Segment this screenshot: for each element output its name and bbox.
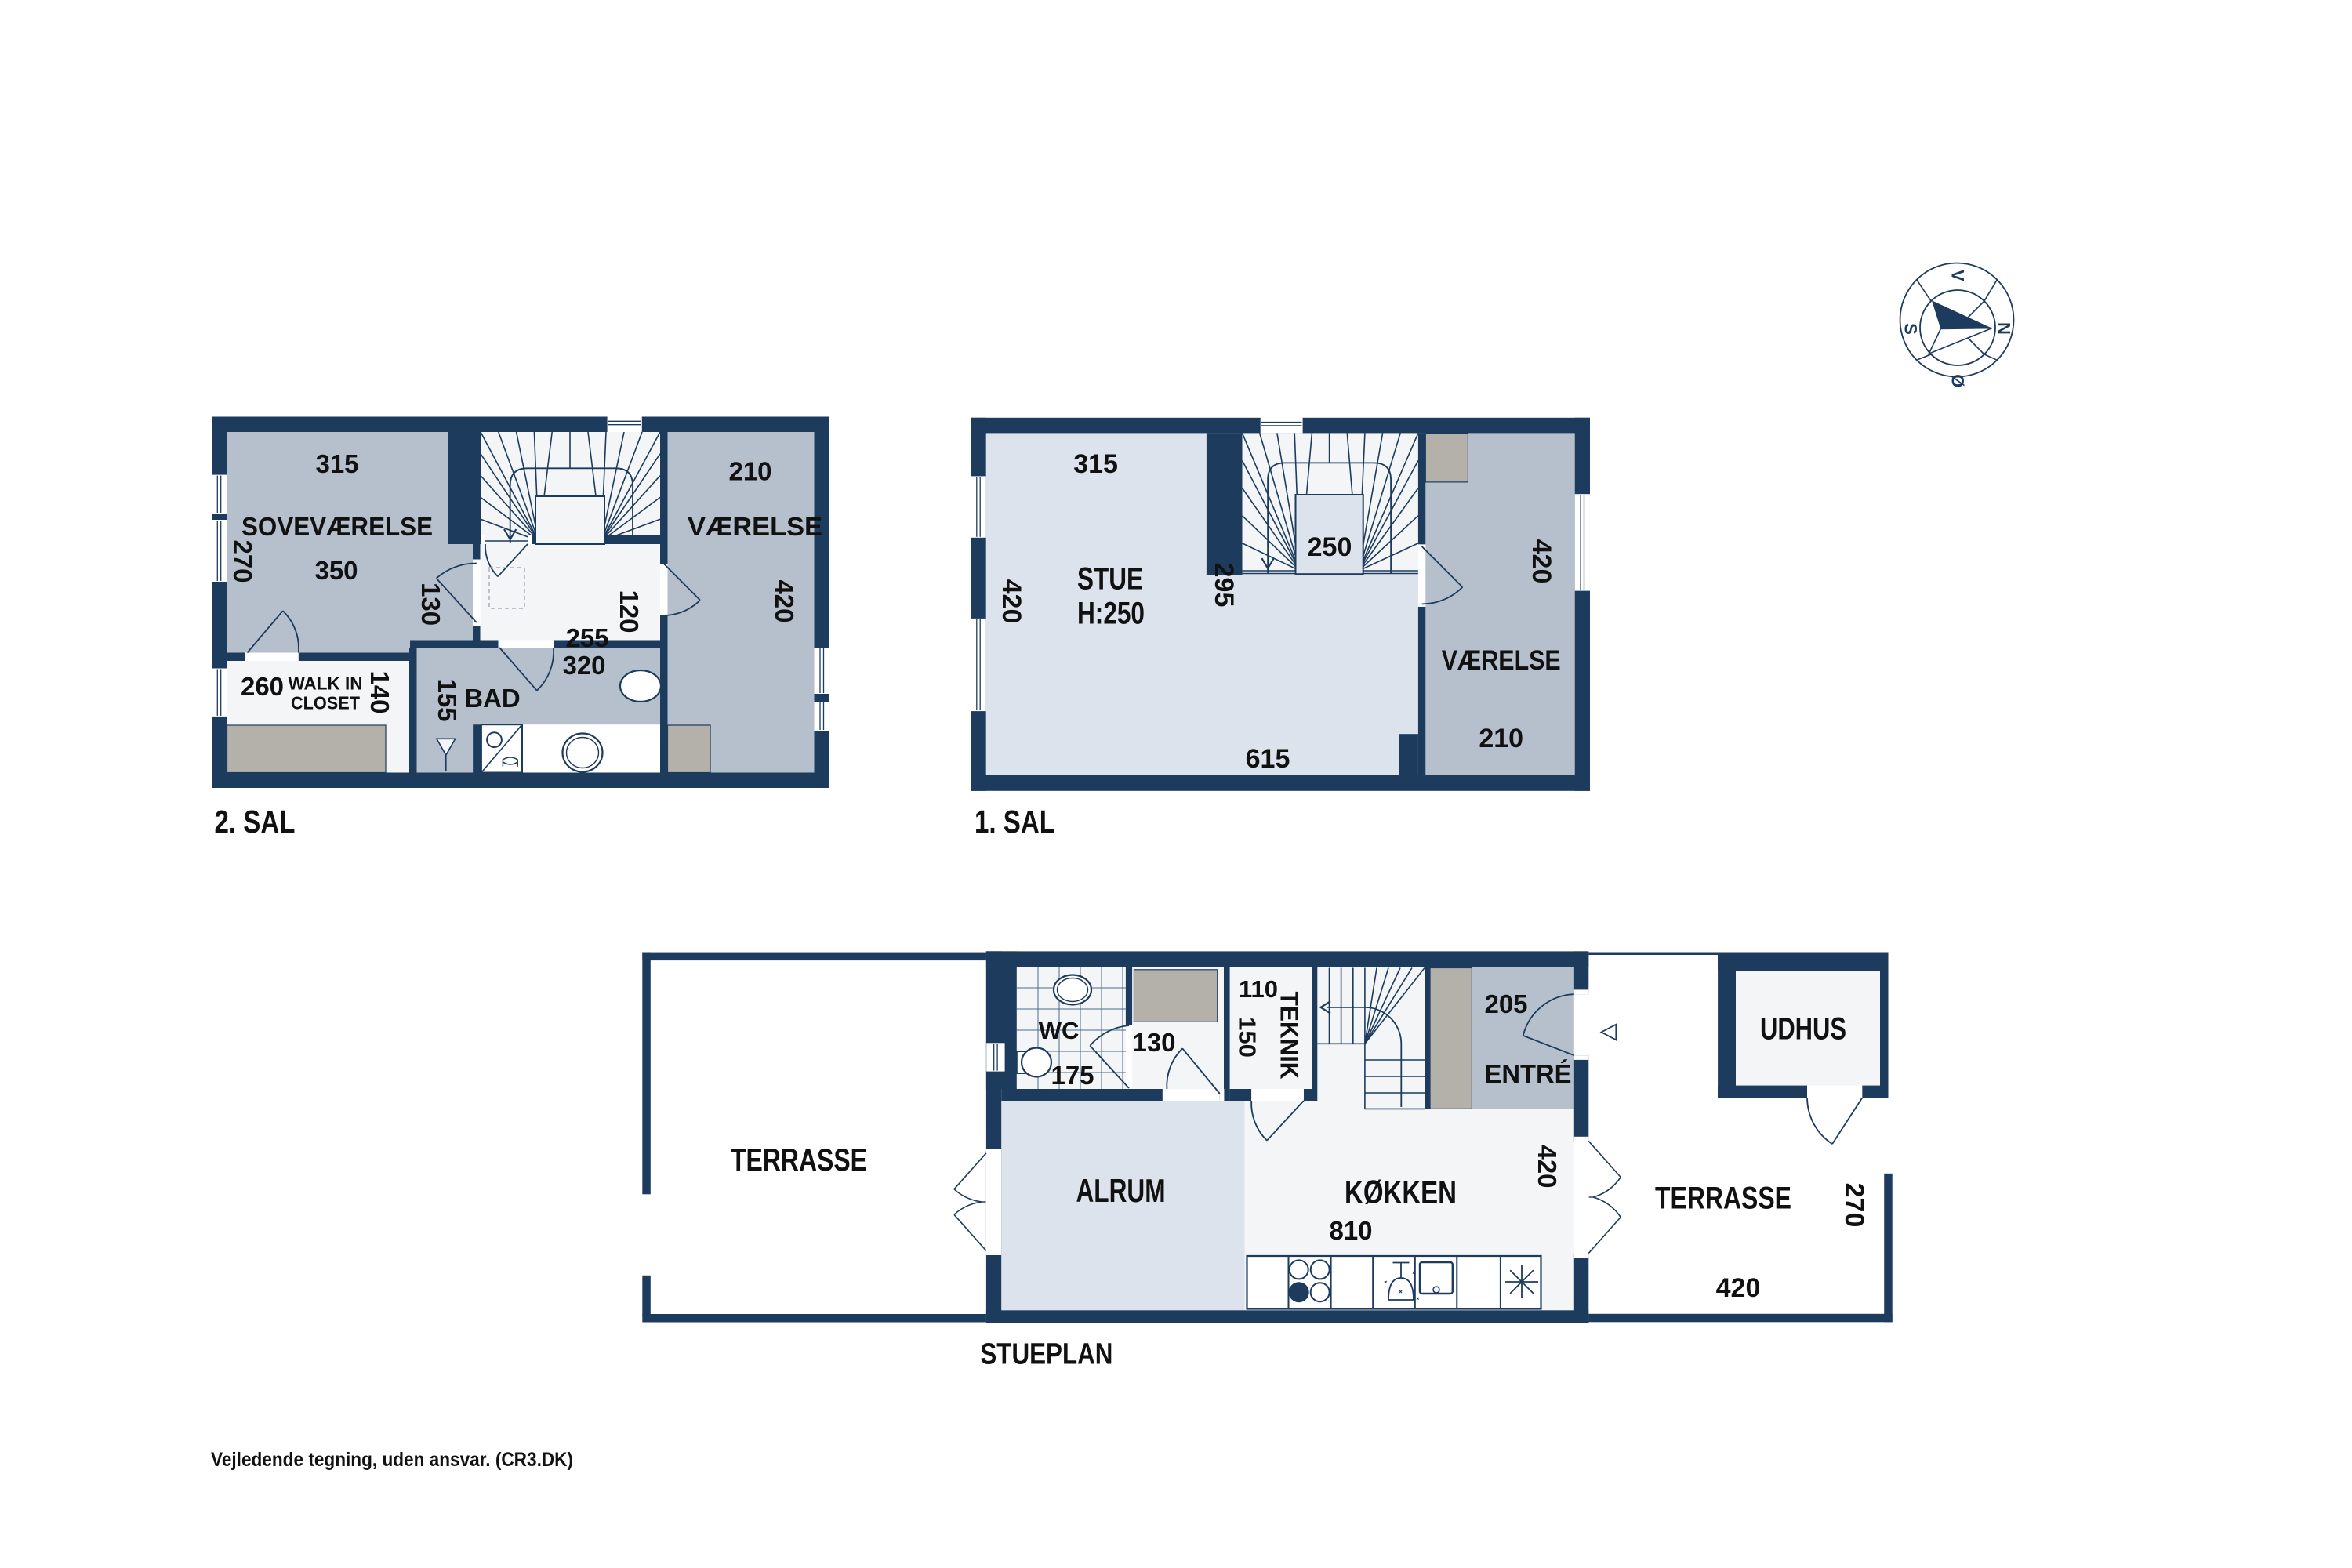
svg-text:155: 155 xyxy=(433,678,462,721)
svg-text:315: 315 xyxy=(1073,449,1118,479)
svg-text:1. SAL: 1. SAL xyxy=(975,804,1055,840)
svg-text:210: 210 xyxy=(728,457,771,486)
svg-text:205: 205 xyxy=(1484,989,1527,1018)
svg-text:120: 120 xyxy=(615,590,644,633)
svg-text:255: 255 xyxy=(565,623,608,652)
svg-text:VÆRELSE: VÆRELSE xyxy=(1442,645,1561,676)
svg-text:TERRASSE: TERRASSE xyxy=(731,1143,867,1178)
svg-text:140: 140 xyxy=(365,670,394,713)
svg-text:420: 420 xyxy=(770,579,799,622)
svg-text:420: 420 xyxy=(996,579,1026,624)
svg-text:KØKKEN: KØKKEN xyxy=(1345,1174,1457,1210)
svg-text:615: 615 xyxy=(1246,744,1290,774)
svg-text:130: 130 xyxy=(1132,1028,1175,1057)
svg-text:ALRUM: ALRUM xyxy=(1076,1172,1166,1209)
svg-text:175: 175 xyxy=(1051,1061,1094,1090)
svg-text:295: 295 xyxy=(1209,563,1239,608)
svg-text:810: 810 xyxy=(1329,1216,1372,1245)
svg-text:2. SAL: 2. SAL xyxy=(215,804,296,840)
svg-text:250: 250 xyxy=(1308,532,1352,562)
svg-text:315: 315 xyxy=(315,449,358,478)
svg-text:WC: WC xyxy=(1039,1017,1080,1044)
svg-text:N: N xyxy=(1994,322,2013,335)
svg-text:WALK IN: WALK IN xyxy=(289,673,363,693)
svg-text:STUEPLAN: STUEPLAN xyxy=(980,1338,1112,1371)
svg-text:ENTRÉ: ENTRÉ xyxy=(1485,1059,1572,1088)
svg-text:260: 260 xyxy=(241,672,284,701)
svg-text:BAD: BAD xyxy=(464,684,521,713)
svg-text:VÆRELSE: VÆRELSE xyxy=(688,512,822,541)
svg-text:420: 420 xyxy=(1716,1273,1761,1303)
svg-text:320: 320 xyxy=(562,651,605,680)
svg-text:STUE: STUE xyxy=(1077,561,1143,596)
svg-text:S: S xyxy=(1901,323,1921,335)
svg-text:210: 210 xyxy=(1479,724,1523,753)
svg-text:270: 270 xyxy=(1839,1183,1869,1228)
svg-text:420: 420 xyxy=(1533,1145,1562,1188)
svg-text:H:250: H:250 xyxy=(1077,596,1145,630)
svg-text:Vejledende tegning, uden ansva: Vejledende tegning, uden ansvar. (CR3.DK… xyxy=(211,1449,573,1471)
svg-text:130: 130 xyxy=(416,583,445,626)
svg-text:270: 270 xyxy=(228,539,257,583)
svg-text:TERRASSE: TERRASSE xyxy=(1655,1181,1791,1215)
svg-text:Ø: Ø xyxy=(1948,374,1968,387)
svg-text:150: 150 xyxy=(1234,1017,1261,1058)
svg-text:350: 350 xyxy=(314,556,358,585)
svg-text:CLOSET: CLOSET xyxy=(291,692,360,713)
svg-text:420: 420 xyxy=(1526,539,1556,584)
svg-text:SOVEVÆRELSE: SOVEVÆRELSE xyxy=(241,512,433,541)
svg-text:V: V xyxy=(1948,270,1968,281)
svg-text:110: 110 xyxy=(1239,975,1278,1003)
svg-text:UDHUS: UDHUS xyxy=(1760,1011,1846,1046)
svg-text:TEKNIK: TEKNIK xyxy=(1276,992,1304,1080)
